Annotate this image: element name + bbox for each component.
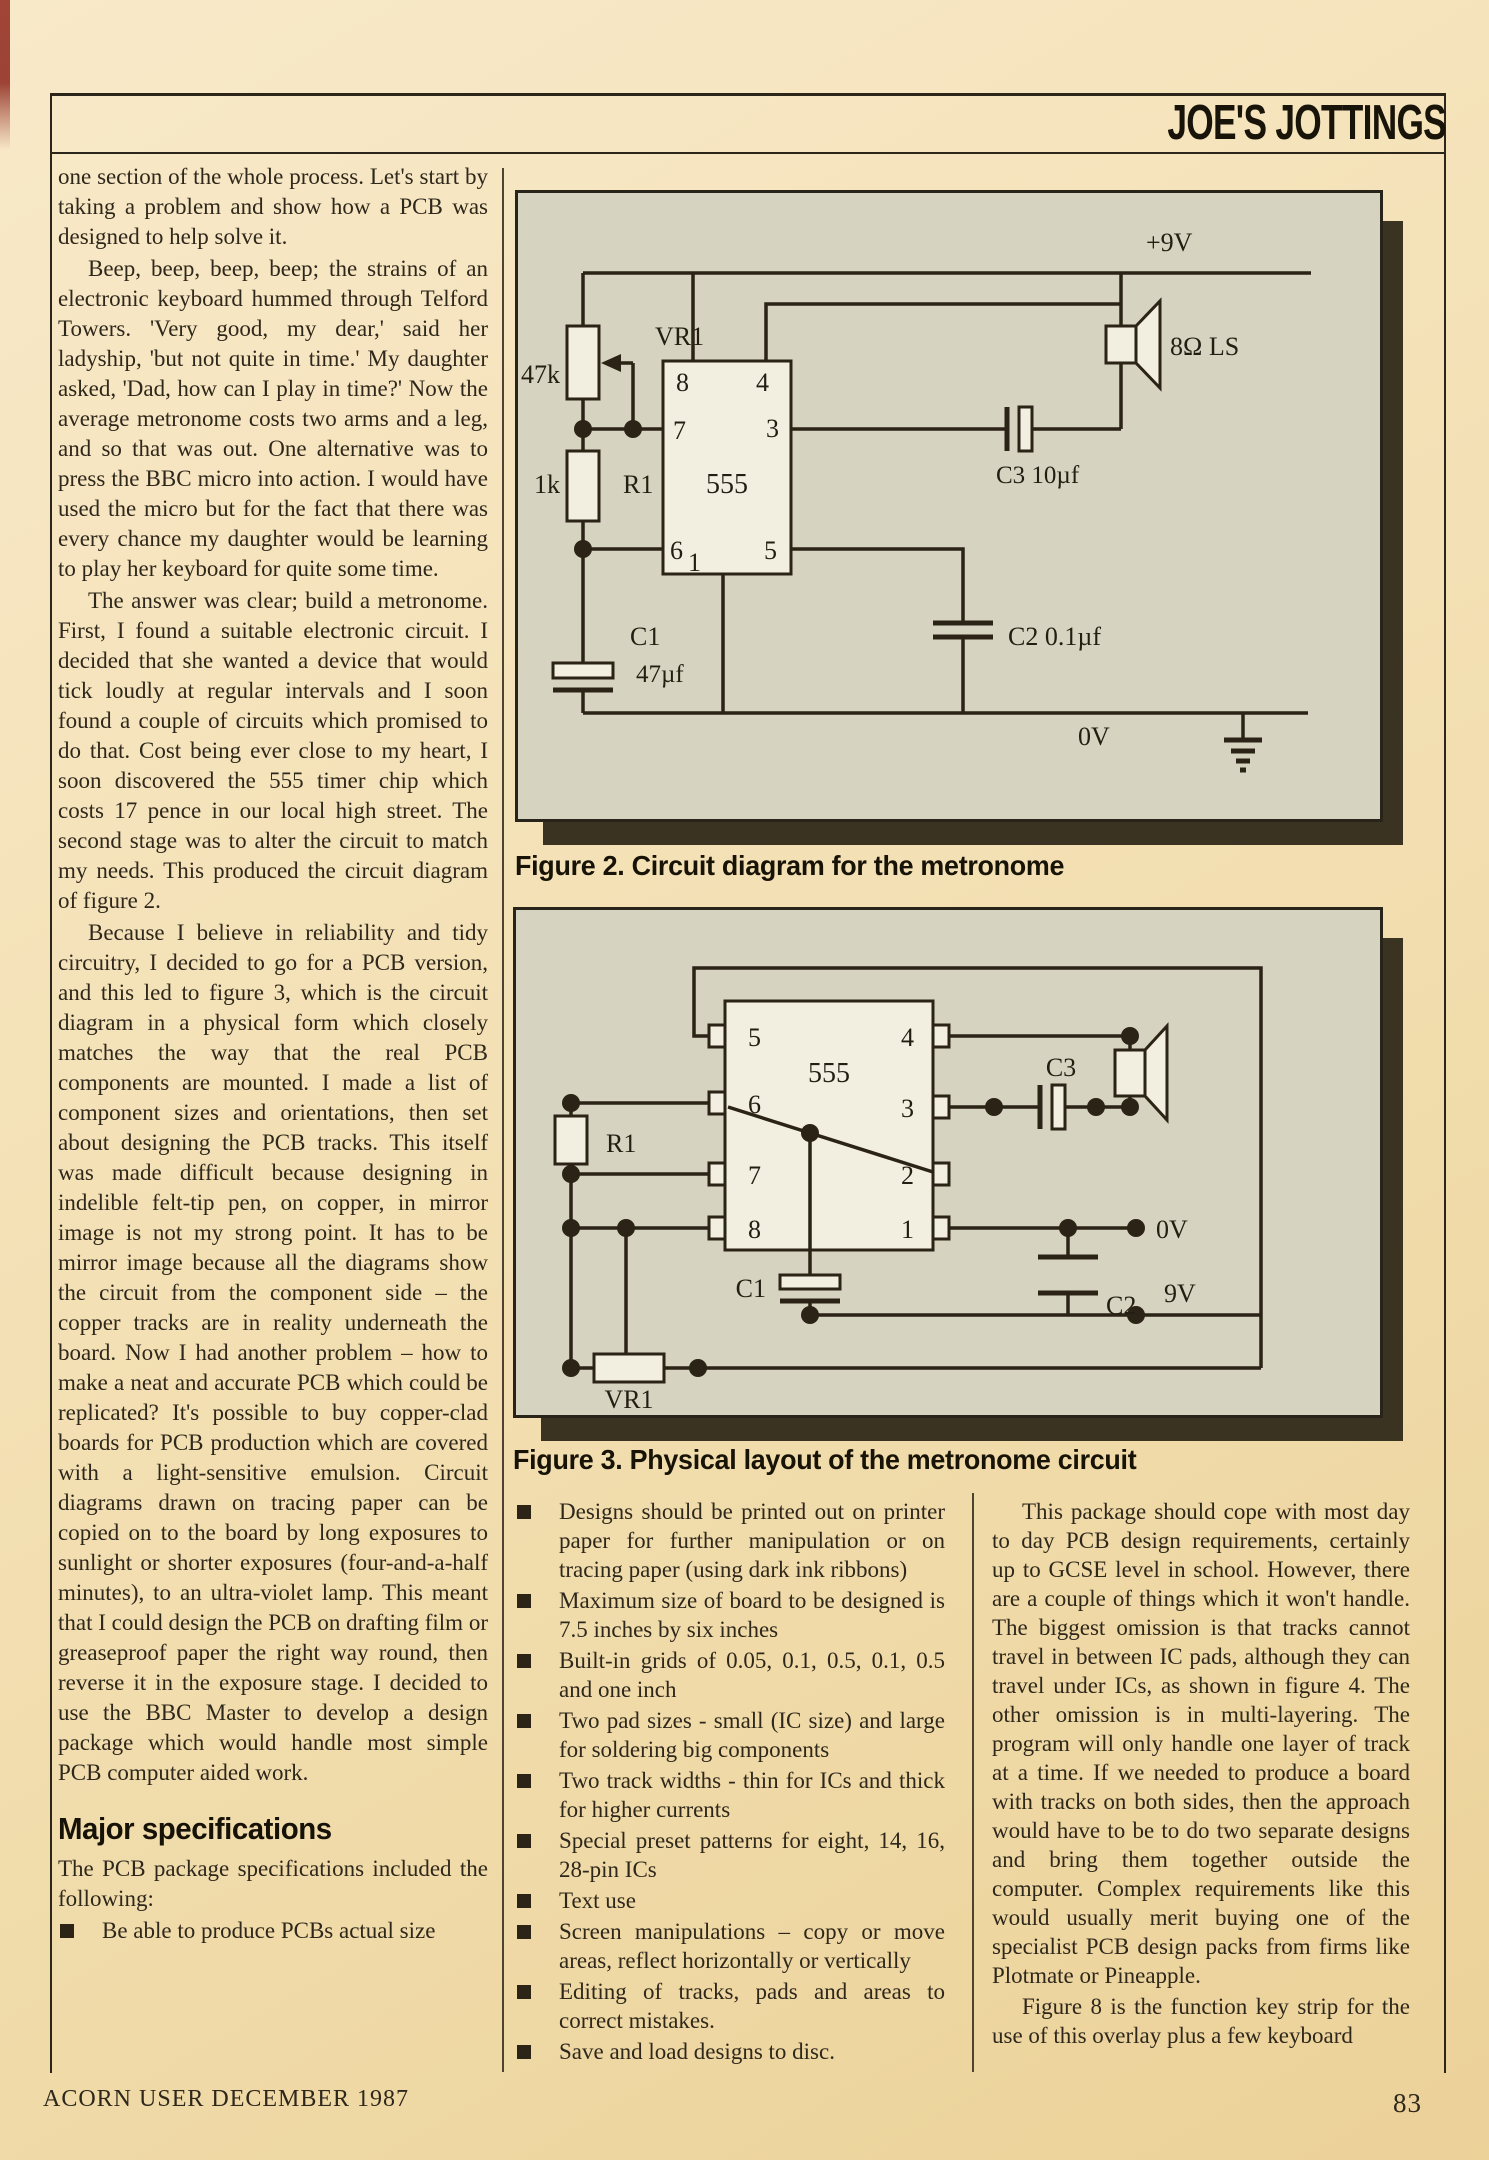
page-title: JOE'S JOTTINGS	[441, 97, 1446, 151]
capacitor-c2	[1038, 1228, 1098, 1315]
component-label: C1	[736, 1274, 766, 1303]
pin5-wire	[791, 549, 963, 623]
pin-label: 6	[670, 536, 683, 565]
bullet-square-icon	[60, 1924, 74, 1938]
rail-label: 0V	[1156, 1215, 1188, 1244]
bullet-square-icon	[517, 1714, 531, 1728]
figure2-schematic: +9V 0V 47k VR1 1k R1	[518, 193, 1380, 819]
speaker-label: 8Ω LS	[1170, 332, 1239, 361]
capacitor-c1	[553, 663, 613, 713]
component-label: VR1	[655, 322, 704, 351]
component-value: 47k	[521, 360, 560, 389]
speaker-icon	[1106, 301, 1160, 388]
component-label: R1	[623, 470, 653, 499]
pin4-wire	[766, 304, 1121, 361]
article-column-3: This package should cope with most day t…	[992, 1497, 1410, 2072]
header-rule	[50, 152, 1446, 154]
list-item: Screen manipulations – copy or move area…	[515, 1917, 945, 1975]
ground-icon	[1224, 713, 1262, 770]
article-column-1: one section of the whole process. Let's …	[58, 162, 488, 2070]
paragraph: one section of the whole process. Let's …	[58, 162, 488, 252]
pin-label: 5	[764, 536, 777, 565]
bullet-square-icon	[517, 2045, 531, 2059]
figure3-caption: Figure 3. Physical layout of the metrono…	[513, 1444, 1136, 1476]
bullet-square-icon	[517, 1774, 531, 1788]
list-item: Text use	[515, 1886, 945, 1915]
article-column-2: Designs should be printed out on printer…	[515, 1497, 945, 2072]
page-edge-mark	[0, 0, 10, 150]
paragraph: Beep, beep, beep, beep; the strains of a…	[58, 254, 488, 584]
figure2-caption: Figure 2. Circuit diagram for the metron…	[515, 850, 1064, 882]
right-border	[1444, 93, 1446, 2073]
pin-label: 5	[748, 1023, 761, 1052]
page-number: 83	[1393, 2088, 1422, 2119]
bullet-square-icon	[517, 1894, 531, 1908]
component-label: C3	[1046, 1053, 1076, 1082]
pin-label: 7	[748, 1161, 761, 1190]
pin-label: 1	[901, 1215, 914, 1244]
pin-label: 8	[676, 368, 689, 397]
paragraph: The PCB package specifications included …	[58, 1854, 488, 1914]
pin-label: 8	[748, 1215, 761, 1244]
figure2-circuit-diagram: +9V 0V 47k VR1 1k R1	[515, 190, 1383, 822]
pin-label: 3	[901, 1094, 914, 1123]
resistor-r1	[555, 1116, 587, 1164]
section-heading: Major specifications	[58, 1814, 467, 1844]
list-item: Designs should be printed out on printer…	[515, 1497, 945, 1584]
list-item: Special preset patterns for eight, 14, 1…	[515, 1826, 945, 1884]
bullet-square-icon	[517, 1834, 531, 1848]
bullet-square-icon	[517, 1505, 531, 1519]
bullet-square-icon	[517, 1985, 531, 1999]
pin-label: 4	[756, 368, 769, 397]
bullet-square-icon	[517, 1925, 531, 1939]
list-item: Built-in grids of 0.05, 0.1, 0.5, 0.1, 0…	[515, 1646, 945, 1704]
figure3-schematic: 555 5 6 7 8 4 3 2 1	[516, 910, 1380, 1415]
magazine-page: JOE'S JOTTINGS one section of the whole …	[0, 0, 1489, 2160]
component-value: 1k	[534, 470, 560, 499]
list-item: Be able to produce PCBs actual size	[58, 1916, 488, 1946]
rail-label: +9V	[1146, 228, 1193, 257]
component-label: C3 10µf	[996, 462, 1080, 489]
paragraph: The answer was clear; build a metronome.…	[58, 586, 488, 916]
column-rule-right	[972, 1493, 974, 2072]
list-item: Save and load designs to disc.	[515, 2037, 945, 2066]
capacitor-c2	[933, 623, 993, 713]
pin-label: 4	[901, 1023, 914, 1052]
component-label: C1	[630, 622, 660, 651]
ic-label: 555	[808, 1058, 850, 1089]
potentiometer-vr1	[567, 326, 599, 399]
potentiometer-vr1	[594, 1354, 664, 1382]
list-item: Editing of tracks, pads and areas to cor…	[515, 1977, 945, 2035]
column-rule-left	[502, 168, 504, 2072]
bullet-square-icon	[517, 1594, 531, 1608]
list-item: Two track widths - thin for ICs and thic…	[515, 1766, 945, 1824]
rail-label: 0V	[1078, 722, 1110, 751]
component-label: C2	[1106, 1291, 1136, 1320]
capacitor-c3	[1007, 407, 1121, 451]
component-label: C2 0.1µf	[1008, 622, 1101, 651]
component-label: R1	[606, 1129, 636, 1158]
pin-label: 3	[766, 414, 779, 443]
figure3-physical-layout: 555 5 6 7 8 4 3 2 1	[513, 907, 1383, 1418]
component-value: 47µf	[636, 661, 684, 688]
list-item: Two pad sizes - small (IC size) and larg…	[515, 1706, 945, 1764]
wiper-wire	[618, 363, 633, 429]
paragraph: Figure 8 is the function key strip for t…	[992, 1992, 1410, 2050]
ic-label: 555	[706, 469, 748, 500]
rail-label: 9V	[1164, 1279, 1196, 1308]
paragraph: This package should cope with most day t…	[992, 1497, 1410, 1990]
list-item: Maximum size of board to be designed is …	[515, 1586, 945, 1644]
pin-label: 7	[673, 416, 686, 445]
bullet-square-icon	[517, 1654, 531, 1668]
component-label: VR1	[604, 1385, 653, 1414]
footer-journal-date: ACORN USER DECEMBER 1987	[43, 2086, 409, 2113]
resistor-r1	[567, 451, 599, 521]
pin-label: 1	[688, 548, 701, 577]
paragraph: Because I believe in reliability and tid…	[58, 918, 488, 1788]
left-border	[50, 93, 52, 2073]
